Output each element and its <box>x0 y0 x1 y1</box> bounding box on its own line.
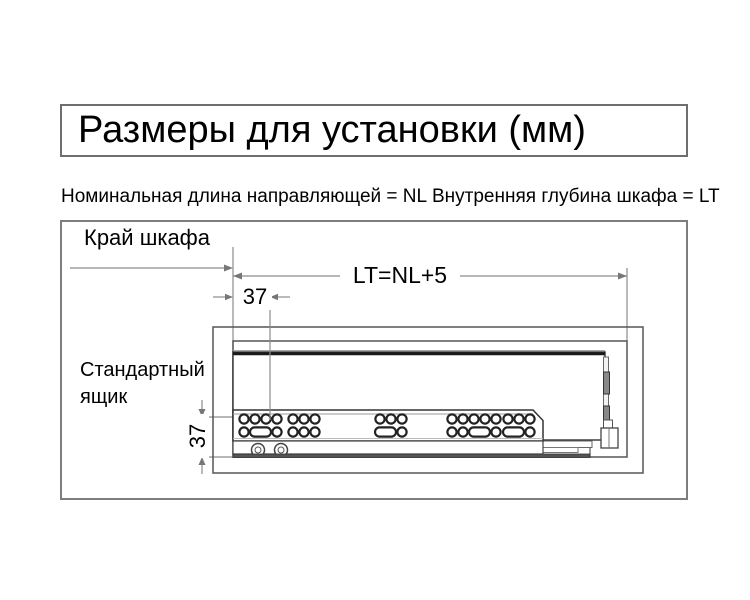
page-title: Размеры для установки (мм) <box>62 109 586 152</box>
depth-dimension-label: LT=NL+5 <box>340 262 460 289</box>
standard-drawer-label: Стандартный ящик <box>80 357 205 411</box>
slide-rail <box>233 410 590 458</box>
vertical-offset-value: 37 <box>185 414 209 458</box>
legend-nominal-length: Номинальная длина направляющей = NL <box>61 186 427 208</box>
cabinet-edge-label: Край шкафа <box>84 225 210 251</box>
rear-bracket <box>601 357 618 448</box>
front-offset-value: 37 <box>238 284 272 310</box>
legend-inner-depth: Внутренняя глубина шкафа = LT <box>432 186 720 208</box>
cabinet-edge-arrow <box>70 265 233 272</box>
title-box: Размеры для установки (мм) <box>60 104 688 157</box>
installation-dimensions-sheet: Размеры для установки (мм) Номинальная д… <box>0 0 750 600</box>
